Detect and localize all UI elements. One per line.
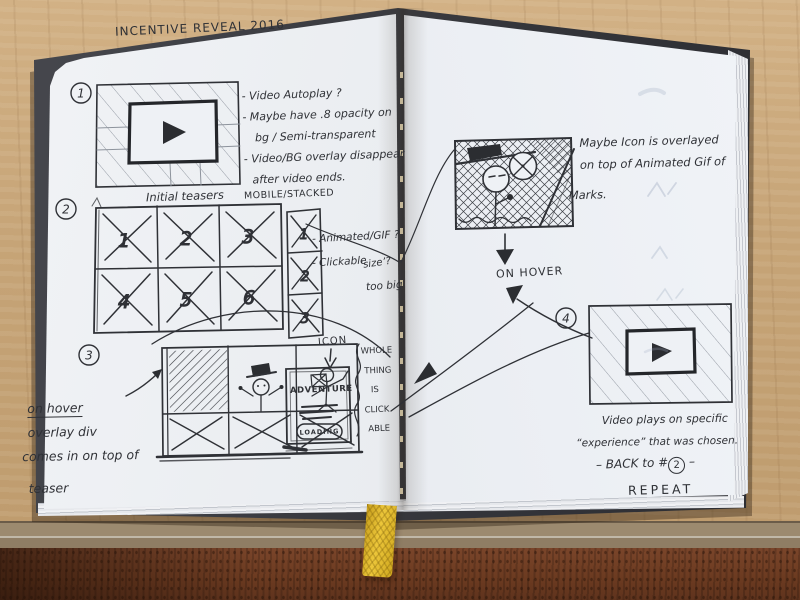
hover-overlay-hatch xyxy=(169,349,228,412)
down-arrow-icon xyxy=(325,349,336,368)
note-line: ABLE xyxy=(368,419,395,439)
note-pointer-arrow xyxy=(126,372,159,396)
back-note-prefix: – BACK to # xyxy=(596,455,669,472)
arc-to-icon-card xyxy=(152,311,390,357)
note-line: Video plays on specific xyxy=(602,407,738,432)
panel4-number-badge: 4 xyxy=(556,308,576,328)
back-to-step-note: – BACK to #2 – xyxy=(596,454,696,476)
note-line: teaser xyxy=(28,475,139,501)
panel2-number: 2 xyxy=(62,203,70,217)
grid-label: Initial teasers xyxy=(146,188,224,205)
mobile-cell-number: 1 xyxy=(300,227,309,243)
note-line: THING xyxy=(364,361,393,381)
grid-cell-number: 2 xyxy=(180,228,192,250)
panel4-number: 4 xyxy=(562,312,570,326)
panel3-notes: on hover overlay div comes in on top of … xyxy=(27,395,139,501)
panel1-hero-video-sketch xyxy=(96,82,240,187)
grid-cell-number: 1 xyxy=(118,230,130,252)
ribbon-bookmark xyxy=(362,504,397,578)
note-line: comes in on top of xyxy=(22,443,139,469)
back-note-suffix: – xyxy=(685,454,695,468)
icon-card-title: ADVENTURE xyxy=(290,384,346,396)
note-line: Marks. xyxy=(568,180,726,206)
panel1-number: 1 xyxy=(77,87,85,101)
panel2-number-badge: 2 xyxy=(56,199,76,219)
arrowhead-icon xyxy=(496,249,514,265)
hover-flow-arrows xyxy=(391,234,592,417)
panel3-number: 3 xyxy=(85,349,93,363)
panel4-notes: Video plays on specific “experience” tha… xyxy=(576,407,739,456)
face-circle xyxy=(483,166,509,192)
curly-brace xyxy=(355,344,361,436)
note-line: on hover xyxy=(27,400,83,418)
arrowhead-icon xyxy=(414,362,437,384)
note-line: CLICK xyxy=(364,400,394,421)
note-too-big: too big xyxy=(366,279,403,294)
gif-sketch-note: Maybe Icon is overlayed on top of Animat… xyxy=(579,128,726,206)
grid-cell-number: 3 xyxy=(242,226,254,248)
snowman-character-sketch xyxy=(239,363,284,411)
panel4-video-sketch xyxy=(589,304,732,404)
whole-thing-clickable-note: WHOLE THING IS CLICK ABLE xyxy=(360,341,395,440)
text-placeholder-lines xyxy=(300,405,337,419)
connector-curve xyxy=(401,150,454,262)
circled-step-number: 2 xyxy=(668,457,686,475)
note-line: “experience” that was chosen. xyxy=(576,430,738,456)
note-line: WHOLE xyxy=(360,341,392,362)
note-line: IS xyxy=(371,380,394,400)
grid-cell-number: 4 xyxy=(118,291,130,313)
icon-card-button-label: LOADING xyxy=(299,427,340,436)
note-line: on top of Animated Gif of xyxy=(580,150,726,176)
grid-cell-number: 5 xyxy=(180,289,192,311)
mobile-cell-number: 2 xyxy=(301,269,310,285)
note-line: overlay div xyxy=(28,419,139,445)
panel1-number-badge: 1 xyxy=(71,83,91,103)
grid-cell-number: 6 xyxy=(243,287,255,309)
panel3-number-badge: 3 xyxy=(79,345,99,365)
gif-teaser-sketch xyxy=(401,138,574,262)
panel2-teaser-grid-sketch: 1 2 3 4 5 6 1 2 3 xyxy=(92,198,399,338)
panel1-notes: - Video Autoplay ? - Maybe have .8 opaci… xyxy=(241,80,405,191)
repeat-label: REPEAT xyxy=(628,481,694,498)
